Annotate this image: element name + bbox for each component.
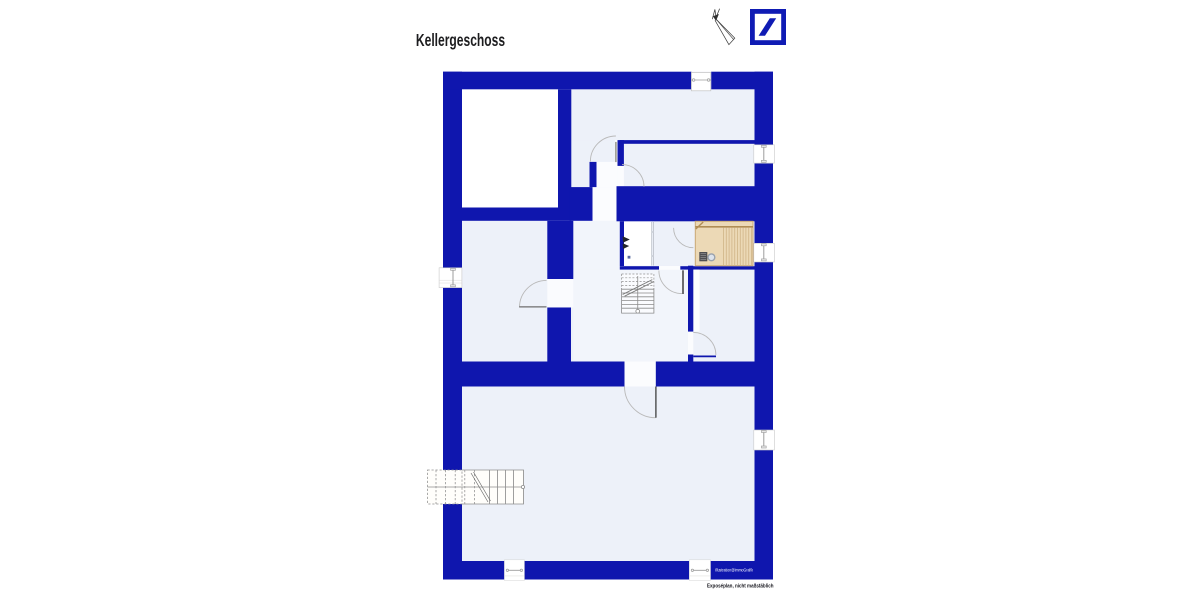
svg-text:Exposéplan, nicht maßstäblich: Exposéplan, nicht maßstäblich	[707, 584, 774, 590]
svg-text:Kellergeschoss: Kellergeschoss	[416, 30, 505, 50]
svg-text:Illustration@immoGrafik: Illustration@immoGrafik	[715, 568, 754, 573]
